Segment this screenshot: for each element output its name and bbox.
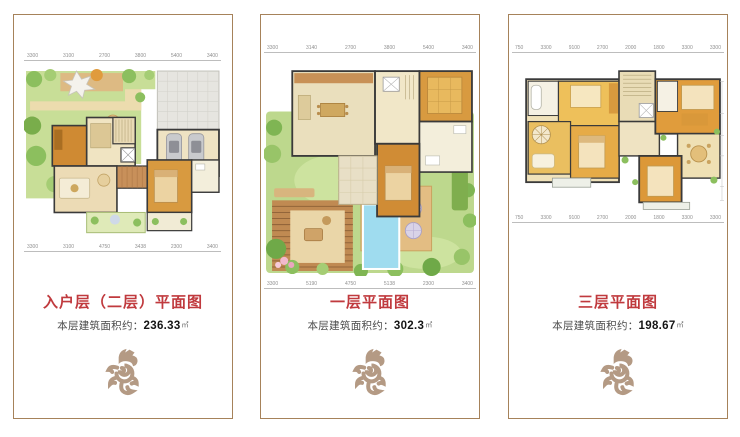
floor-area: 本层建筑面积约：302.3㎡	[261, 318, 479, 333]
floorplan-block: 330031002700380054003400	[24, 53, 221, 252]
dragon-motif-icon	[99, 346, 147, 398]
bedroom-top-right	[655, 79, 720, 134]
bedroom	[147, 160, 191, 213]
terrace	[87, 212, 146, 232]
area-value: 302.3	[394, 320, 424, 332]
dragon-motif-icon	[594, 346, 642, 398]
wood-porch	[117, 166, 147, 188]
master-bedroom	[419, 71, 471, 121]
dimension-labels-bottom: 330031004750343823003400	[24, 244, 221, 252]
floorplan-block: 330031402700380054003400	[264, 45, 476, 289]
area-label: 本层建筑面积约：	[57, 320, 143, 332]
bathroom	[528, 81, 558, 115]
bedroom-bottom	[639, 156, 681, 202]
brochure-page: 330031002700380054003400	[0, 0, 740, 437]
panel-first-floor: 330031402700380054003400	[260, 14, 480, 419]
floorplan-drawing-entry-second-floor	[24, 67, 221, 239]
dimension-labels-bottom: 7503300910027002000180033003300	[512, 215, 724, 223]
panel-entry-second-floor: 330031002700380054003400	[13, 14, 233, 419]
bathroom-suite	[419, 122, 471, 172]
balcony-bottom	[643, 202, 689, 209]
panel-third-floor: 7503300910027002000180033003300	[508, 14, 728, 419]
area-unit: ㎡	[182, 322, 189, 329]
floor-title: 一层平面图	[261, 291, 479, 312]
staircase-core	[619, 71, 655, 121]
elevator	[121, 148, 135, 162]
staircase	[113, 118, 135, 144]
floor-area: 本层建筑面积约：198.67㎡	[509, 318, 727, 333]
hallway	[619, 122, 659, 156]
area-label: 本层建筑面积约：	[308, 320, 394, 332]
master-bedroom	[571, 126, 619, 178]
area-value: 236.33	[144, 320, 181, 332]
floorplan-drawing-third-floor	[512, 59, 724, 210]
dimension-labels-top: 7503300910027002000180033003300	[512, 45, 724, 53]
dragon-motif-icon	[346, 346, 394, 398]
area-label: 本层建筑面积约：	[552, 320, 638, 332]
wood-floor-room	[377, 144, 419, 217]
balcony	[552, 178, 590, 187]
hall-staircase	[375, 71, 419, 144]
area-unit: ㎡	[425, 322, 432, 329]
courtyard-patio	[339, 156, 377, 204]
floor-title: 入户层（二层）平面图	[14, 291, 232, 312]
floorplan-block: 7503300910027002000180033003300	[512, 45, 724, 223]
floor-title: 三层平面图	[509, 291, 727, 312]
floor-area: 本层建筑面积约：236.33㎡	[14, 318, 232, 333]
kitchen-dining	[292, 71, 375, 156]
floorplan-drawing-first-floor	[264, 59, 476, 276]
bedroom-top-left	[558, 81, 619, 125]
dimension-labels-top: 330031002700380054003400	[24, 53, 221, 61]
area-value: 198.67	[639, 320, 676, 332]
dimension-labels-bottom: 330051904750513823003400	[264, 281, 476, 289]
sitting-room-spiral-stair	[528, 122, 570, 174]
living-room	[54, 166, 117, 212]
tea-room	[678, 134, 720, 178]
driveway	[157, 71, 219, 130]
dimension-labels-top: 330031402700380054003400	[264, 45, 476, 53]
balcony	[147, 212, 191, 230]
area-unit: ㎡	[677, 322, 684, 329]
